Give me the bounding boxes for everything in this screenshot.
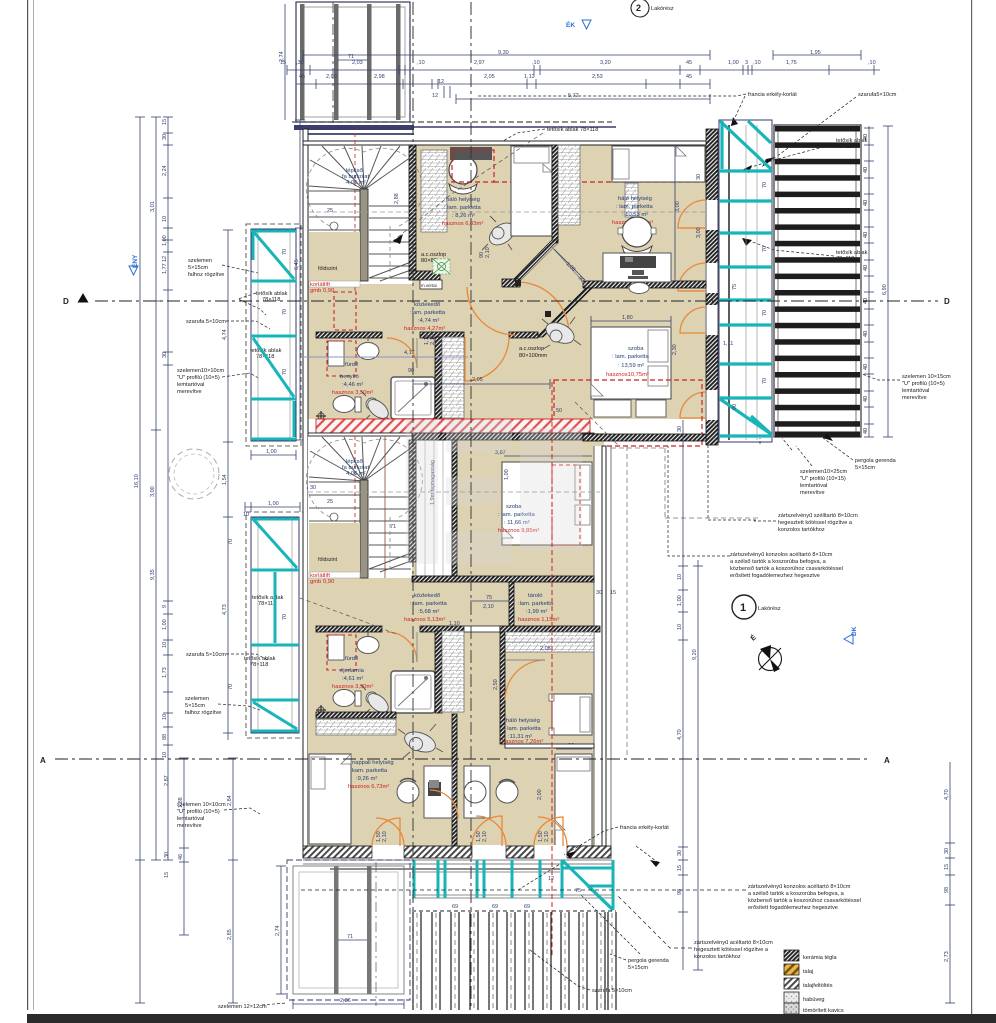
svg-text:2,05: 2,05 <box>540 646 551 652</box>
svg-text:tároló: tároló <box>528 593 543 599</box>
svg-text:habüveg: habüveg <box>803 997 824 1003</box>
svg-text:2,10: 2,10 <box>382 831 388 842</box>
svg-text:30: 30 <box>596 590 602 596</box>
svg-text:konzolos tartókhoz: konzolos tartókhoz <box>694 954 741 960</box>
svg-text:konzolos tartókhoz: konzolos tartókhoz <box>778 527 825 533</box>
svg-text:tetősík ablak 78×118: tetősík ablak 78×118 <box>547 127 598 133</box>
svg-text:2: 2 <box>636 3 641 13</box>
svg-text:1,00: 1,00 <box>162 619 168 630</box>
svg-text:10: 10 <box>677 574 683 580</box>
svg-text:a szélső tartók a koszorúba be: a szélső tartók a koszorúba befogva, a <box>748 891 845 897</box>
svg-text:erősített fogadólemezhez heges: erősített fogadólemezhez hegesztve <box>748 905 838 911</box>
svg-text:: lam. parketta: : lam. parketta <box>444 205 482 211</box>
svg-text:közlekedő: közlekedő <box>414 593 440 599</box>
svg-text:15: 15 <box>677 865 683 871</box>
svg-text:9: 9 <box>162 605 168 608</box>
svg-text:D: D <box>944 297 950 306</box>
svg-text::4,74 m²: :4,74 m² <box>418 318 439 324</box>
svg-text:2,24: 2,24 <box>162 165 168 176</box>
svg-text:hasznos 4,27m²: hasznos 4,27m² <box>404 326 445 332</box>
svg-text:háló helyiség: háló helyiség <box>618 196 652 202</box>
svg-text:2,30: 2,30 <box>672 344 678 355</box>
svg-text:merevítve: merevítve <box>800 490 825 496</box>
svg-text:zártszelvényű szélltartó 8×10c: zártszelvényű szélltartó 8×10cm <box>778 513 858 519</box>
svg-text:szarufa 5×10cm: szarufa 5×10cm <box>186 319 226 325</box>
svg-text:15: 15 <box>164 872 170 878</box>
svg-text::lam. parketta: :lam. parketta <box>518 601 554 607</box>
svg-text:kerámia tégla: kerámia tégla <box>803 955 837 961</box>
svg-text:: 8,26 m²: : 8,26 m² <box>452 213 475 219</box>
svg-text:"U" profilú (10×5): "U" profilú (10×5) <box>902 381 945 387</box>
svg-text:30: 30 <box>944 848 950 854</box>
svg-text:hasznos 3,50m²: hasznos 3,50m² <box>332 390 373 396</box>
svg-text:70: 70 <box>282 369 288 375</box>
svg-text:benyíló: benyíló <box>340 374 359 380</box>
svg-text:2,10: 2,10 <box>483 604 494 610</box>
svg-text:hasznos 5,13m²: hasznos 5,13m² <box>404 617 445 623</box>
svg-text:közlekedő: közlekedő <box>414 302 440 308</box>
svg-text:: lam. parketta: : lam. parketta <box>616 204 654 210</box>
svg-text:45: 45 <box>686 60 692 66</box>
svg-text:"U" profilú (10×5): "U" profilú (10×5) <box>177 809 220 815</box>
svg-text:4,70: 4,70 <box>677 729 683 740</box>
svg-text:"U" profilú (10×5): "U" profilú (10×5) <box>177 375 220 381</box>
svg-text:88: 88 <box>162 734 168 740</box>
svg-text:40: 40 <box>863 232 869 238</box>
svg-text:4,06 m²: 4,06 m² <box>346 471 366 477</box>
svg-text::lam. parketta: :lam. parketta <box>410 310 446 316</box>
svg-text:falhoz rögzítve: falhoz rögzítve <box>185 710 221 716</box>
svg-text:szarufa 5×10cm: szarufa 5×10cm <box>592 988 632 994</box>
svg-text:2,00: 2,00 <box>326 74 337 80</box>
svg-text:98: 98 <box>944 887 950 893</box>
svg-text:70: 70 <box>228 684 234 690</box>
svg-text:2,03: 2,03 <box>352 60 363 66</box>
svg-text:hasznos 6,03m²: hasznos 6,03m² <box>442 221 483 227</box>
svg-text:2,05: 2,05 <box>484 74 495 80</box>
svg-text:szoba: szoba <box>506 504 522 510</box>
svg-text:2,53: 2,53 <box>592 74 603 80</box>
svg-text:2,50: 2,50 <box>493 679 499 690</box>
svg-text:78×118: 78×118 <box>250 662 268 668</box>
svg-text:1,00: 1,00 <box>266 449 277 455</box>
svg-text:9,30: 9,30 <box>498 50 509 56</box>
svg-text:lemtartóval: lemtartóval <box>902 388 929 394</box>
svg-text:szelemen 10×15cm: szelemen 10×15cm <box>902 374 951 380</box>
svg-text:a.c.oszlop: a.c.oszlop <box>519 346 544 352</box>
svg-text:közbenső tartók a koszorúhoz c: közbenső tartók a koszorúhoz csavarkötés… <box>748 898 861 904</box>
svg-text:D: D <box>63 297 69 306</box>
svg-text:: lam. parketta: : lam. parketta <box>504 726 542 732</box>
svg-text:2,10: 2,10 <box>482 831 488 842</box>
svg-text:2,00: 2,00 <box>537 789 543 800</box>
svg-text:francia erkély-korlát: francia erkély-korlát <box>748 92 797 98</box>
svg-text:zártszelvényű konzolos acéltar: zártszelvényű konzolos acéltartó 8×10cm <box>748 884 851 890</box>
svg-text:15: 15 <box>944 864 950 870</box>
svg-text:gmb 0,90: gmb 0,90 <box>310 579 334 585</box>
svg-text:3: 3 <box>745 60 748 66</box>
svg-text:lemtartóval: lemtartóval <box>800 483 827 489</box>
svg-text:5×15cm: 5×15cm <box>855 465 875 471</box>
svg-text:12: 12 <box>438 79 444 85</box>
svg-text:10: 10 <box>162 714 168 720</box>
svg-text:6,45: 6,45 <box>294 259 300 270</box>
svg-text:2,88: 2,88 <box>394 193 400 204</box>
svg-text:a szélső tartók a koszorúba be: a szélső tartók a koszorúba befogva, a <box>730 559 827 565</box>
svg-text:"U" profilú (10×15): "U" profilú (10×15) <box>800 476 846 482</box>
svg-text:70: 70 <box>762 246 768 252</box>
svg-text:1,00: 1,00 <box>504 469 510 480</box>
svg-text:3,20: 3,20 <box>600 60 611 66</box>
svg-text:5×15cm: 5×15cm <box>188 265 208 271</box>
svg-text:45: 45 <box>686 74 692 80</box>
svg-text:szelemen: szelemen <box>188 258 212 264</box>
svg-text:16,10: 16,10 <box>134 474 140 488</box>
svg-text:69: 69 <box>452 904 458 910</box>
svg-text:2,98: 2,98 <box>374 74 385 80</box>
svg-text:10: 10 <box>677 624 683 630</box>
svg-text:10: 10 <box>162 642 168 648</box>
svg-text:földszint: földszint <box>318 266 338 272</box>
svg-text:4,73: 4,73 <box>222 604 228 615</box>
svg-text:pergola gerenda: pergola gerenda <box>628 958 670 964</box>
svg-text:30: 30 <box>677 850 683 856</box>
svg-text:1,77: 1,77 <box>162 263 168 274</box>
svg-text:2,36: 2,36 <box>340 998 351 1004</box>
svg-text:m.vertai: m.vertai <box>421 283 437 288</box>
svg-text:3,00: 3,00 <box>696 227 702 238</box>
svg-text:háló helyiség: háló helyiség <box>506 718 540 724</box>
svg-text:szelemen10×10cm: szelemen10×10cm <box>177 368 224 374</box>
svg-text:40: 40 <box>863 364 869 370</box>
svg-text:szoba: szoba <box>628 346 644 352</box>
svg-text:merevítve: merevítve <box>177 389 202 395</box>
svg-text:3,01: 3,01 <box>150 201 156 212</box>
svg-text:,10: ,10 <box>532 60 540 66</box>
svg-text:: lam. parketta: : lam. parketta <box>612 354 650 360</box>
svg-text:40: 40 <box>863 200 869 206</box>
svg-text:fürdő: fürdő <box>345 656 358 662</box>
svg-text:szelemen: szelemen <box>185 696 209 702</box>
svg-text:hasznos10,75m²: hasznos10,75m² <box>606 372 649 378</box>
svg-text:1,95: 1,95 <box>810 50 821 56</box>
svg-text:2,10: 2,10 <box>430 334 436 345</box>
svg-text:70: 70 <box>228 539 234 545</box>
svg-text:szarufa 5×10cm: szarufa 5×10cm <box>186 652 226 658</box>
svg-text:1,88: 1,88 <box>178 797 184 808</box>
svg-text:3,00: 3,00 <box>150 486 156 497</box>
svg-text:erősített fogadólemezhez heges: erősített fogadólemezhez hegesztve <box>730 573 820 579</box>
svg-text:6,90: 6,90 <box>882 284 888 295</box>
svg-text:30: 30 <box>162 134 168 140</box>
svg-text:hegesztett kötéssel rögzítve a: hegesztett kötéssel rögzítve a <box>778 520 853 526</box>
svg-text:75: 75 <box>575 888 581 894</box>
svg-text:zártszelvényű konzolos acéltar: zártszelvényű konzolos acéltartó 8×10cm <box>730 552 833 558</box>
svg-text:merevítve: merevítve <box>902 395 927 401</box>
svg-text:70: 70 <box>282 249 288 255</box>
svg-text:1: 1 <box>740 602 746 614</box>
svg-text:1,54: 1,54 <box>222 474 228 485</box>
svg-text:1,80: 1,80 <box>622 315 633 321</box>
svg-text:69: 69 <box>492 904 498 910</box>
svg-text:4,70: 4,70 <box>944 789 950 800</box>
svg-text:hegesztett kötéssel rögzítve a: hegesztett kötéssel rögzítve a <box>694 947 769 953</box>
svg-text:80×100mm: 80×100mm <box>519 353 547 359</box>
svg-text:40: 40 <box>863 265 869 271</box>
svg-text:9,35: 9,35 <box>150 569 156 580</box>
svg-text:1,00: 1,00 <box>162 235 168 246</box>
svg-text:2,05: 2,05 <box>472 377 483 383</box>
svg-text:,10: ,10 <box>753 60 761 66</box>
svg-text:,10: ,10 <box>417 60 425 66</box>
svg-text:10: 10 <box>162 752 168 758</box>
svg-text:40: 40 <box>863 428 869 434</box>
svg-text:merevítve: merevítve <box>177 823 202 829</box>
svg-text:71: 71 <box>390 524 396 530</box>
svg-text:75: 75 <box>732 284 738 290</box>
svg-text:2,84: 2,84 <box>227 795 233 806</box>
svg-text:1,75: 1,75 <box>786 60 797 66</box>
svg-text:69: 69 <box>524 904 530 910</box>
svg-text:5×15cm: 5×15cm <box>185 703 205 709</box>
svg-text:szelemen 12×12cm: szelemen 12×12cm <box>218 1004 267 1010</box>
svg-text:Lakórész: Lakórész <box>651 6 674 12</box>
svg-text:2,85: 2,85 <box>227 929 233 940</box>
svg-text:1,11: 1,11 <box>723 341 733 347</box>
svg-text::5,68 m²: :5,68 m² <box>418 609 439 615</box>
svg-text:gmb 0,90: gmb 0,90 <box>310 288 334 294</box>
svg-text:45: 45 <box>299 74 305 80</box>
svg-text:1,00: 1,00 <box>677 595 683 606</box>
svg-text:4,74: 4,74 <box>222 329 228 340</box>
svg-text:nappali helyiség: nappali helyiség <box>352 760 394 766</box>
svg-text:30: 30 <box>310 485 316 491</box>
svg-text:háló helyiség: háló helyiség <box>446 197 480 203</box>
svg-text:70: 70 <box>762 182 768 188</box>
svg-text:12: 12 <box>162 256 168 262</box>
svg-text:40: 40 <box>863 331 869 337</box>
svg-text:12: 12 <box>548 876 554 882</box>
svg-text:tömörített kavics: tömörített kavics <box>803 1008 844 1014</box>
svg-text:2,97: 2,97 <box>474 60 485 66</box>
svg-text:,30: ,30 <box>296 60 304 66</box>
svg-text:9,20: 9,20 <box>692 649 698 660</box>
svg-text::9,26 m²: :9,26 m² <box>356 776 377 782</box>
svg-text:talajfeltöltés: talajfeltöltés <box>803 983 833 989</box>
svg-text:15: 15 <box>162 119 168 125</box>
svg-text:: 13,59 m²: : 13,59 m² <box>618 363 644 369</box>
svg-text:46: 46 <box>178 854 184 860</box>
svg-text:90: 90 <box>732 404 738 410</box>
svg-text:ÉK: ÉK <box>566 20 575 29</box>
svg-text:közbenső tartók a koszorúhoz c: közbenső tartók a koszorúhoz csavarkötés… <box>730 566 843 572</box>
svg-text:50: 50 <box>556 408 562 414</box>
svg-text:1,00: 1,00 <box>268 501 279 507</box>
svg-text:fürdő: fürdő <box>345 362 358 368</box>
svg-text:szarufa5×10cm: szarufa5×10cm <box>858 92 897 98</box>
svg-text:1,13: 1,13 <box>524 74 535 80</box>
svg-text:talaj: talaj <box>803 969 813 975</box>
svg-text:30: 30 <box>696 174 702 180</box>
svg-text:30: 30 <box>677 426 683 432</box>
svg-text:éjerlarnia: éjerlarnia <box>340 668 365 674</box>
svg-text:25: 25 <box>327 208 333 214</box>
svg-text:40: 40 <box>863 167 869 173</box>
svg-text:A: A <box>884 756 890 765</box>
svg-text:pergola gerenda: pergola gerenda <box>855 458 897 464</box>
svg-text:5×15cm: 5×15cm <box>628 965 648 971</box>
svg-text:földszint: földszint <box>318 557 338 563</box>
svg-text:30: 30 <box>162 352 168 358</box>
svg-text:hasznos 3,90m²: hasznos 3,90m² <box>332 684 373 690</box>
svg-text:30: 30 <box>164 852 170 858</box>
svg-text:40: 40 <box>863 134 869 140</box>
svg-text:hasznos 6,73m²: hasznos 6,73m² <box>348 784 389 790</box>
svg-text:1,73: 1,73 <box>162 667 168 678</box>
svg-text:70: 70 <box>282 309 288 315</box>
svg-text::4,46 m²: :4,46 m² <box>342 382 363 388</box>
svg-text:2,10: 2,10 <box>485 247 491 258</box>
svg-text:2,73: 2,73 <box>944 951 950 962</box>
svg-text:hasznos 1,15m²: hasznos 1,15m² <box>518 617 559 623</box>
svg-text:40: 40 <box>863 396 869 402</box>
svg-text:10: 10 <box>162 216 168 222</box>
svg-text:zártszelvényű acéltartó 8×10cm: zártszelvényű acéltartó 8×10cm <box>694 940 773 946</box>
svg-text:3,00: 3,00 <box>675 201 681 212</box>
svg-text:70: 70 <box>282 614 288 620</box>
svg-text:25: 25 <box>327 499 333 505</box>
svg-text:lemtartóval: lemtartóval <box>177 382 204 388</box>
svg-text:70: 70 <box>762 378 768 384</box>
svg-text:1,00: 1,00 <box>728 60 739 66</box>
svg-text:francia erkély-korlát: francia erkély-korlát <box>620 825 669 831</box>
svg-text:2,74: 2,74 <box>275 925 281 936</box>
svg-text:falhoz rögzítve: falhoz rögzítve <box>188 272 224 278</box>
svg-text:,10: ,10 <box>868 60 876 66</box>
svg-text:2,10: 2,10 <box>544 831 550 842</box>
svg-text:kam. parketta: kam. parketta <box>352 768 388 774</box>
svg-text::4,61 m²: :4,61 m² <box>342 676 363 682</box>
svg-text:75: 75 <box>486 595 492 601</box>
svg-text:70: 70 <box>762 310 768 316</box>
svg-text:4,06 m²: 4,06 m² <box>346 180 366 186</box>
svg-text:A: A <box>40 756 46 765</box>
svg-text:: lam. parketta: : lam. parketta <box>410 601 448 607</box>
svg-text:15: 15 <box>280 60 286 66</box>
svg-text::1,99 m²: :1,99 m² <box>526 609 547 615</box>
svg-text:10: 10 <box>243 512 249 518</box>
svg-text:Lakórész: Lakórész <box>758 606 781 612</box>
svg-text:15: 15 <box>610 590 616 596</box>
svg-text:12: 12 <box>432 93 438 99</box>
svg-text:szelemen10×25cm: szelemen10×25cm <box>800 469 847 475</box>
svg-text:78×118: 78×118 <box>262 297 280 303</box>
svg-text:lemtartóval: lemtartóval <box>177 816 204 822</box>
svg-text:71: 71 <box>347 934 353 940</box>
svg-text:2,87: 2,87 <box>164 775 170 786</box>
